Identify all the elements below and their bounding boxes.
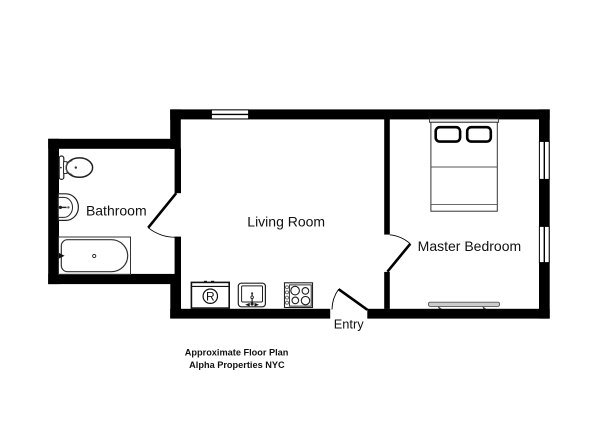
svg-text:Approximate Floor Plan: Approximate Floor Plan [185,347,289,357]
svg-text:Master Bedroom: Master Bedroom [418,238,521,254]
svg-text:Alpha Properties NYC: Alpha Properties NYC [189,360,285,370]
svg-text:Entry: Entry [334,317,364,332]
svg-text:Bathroom: Bathroom [86,203,147,219]
svg-text:R: R [206,289,215,303]
svg-text:Living Room: Living Room [247,213,325,229]
